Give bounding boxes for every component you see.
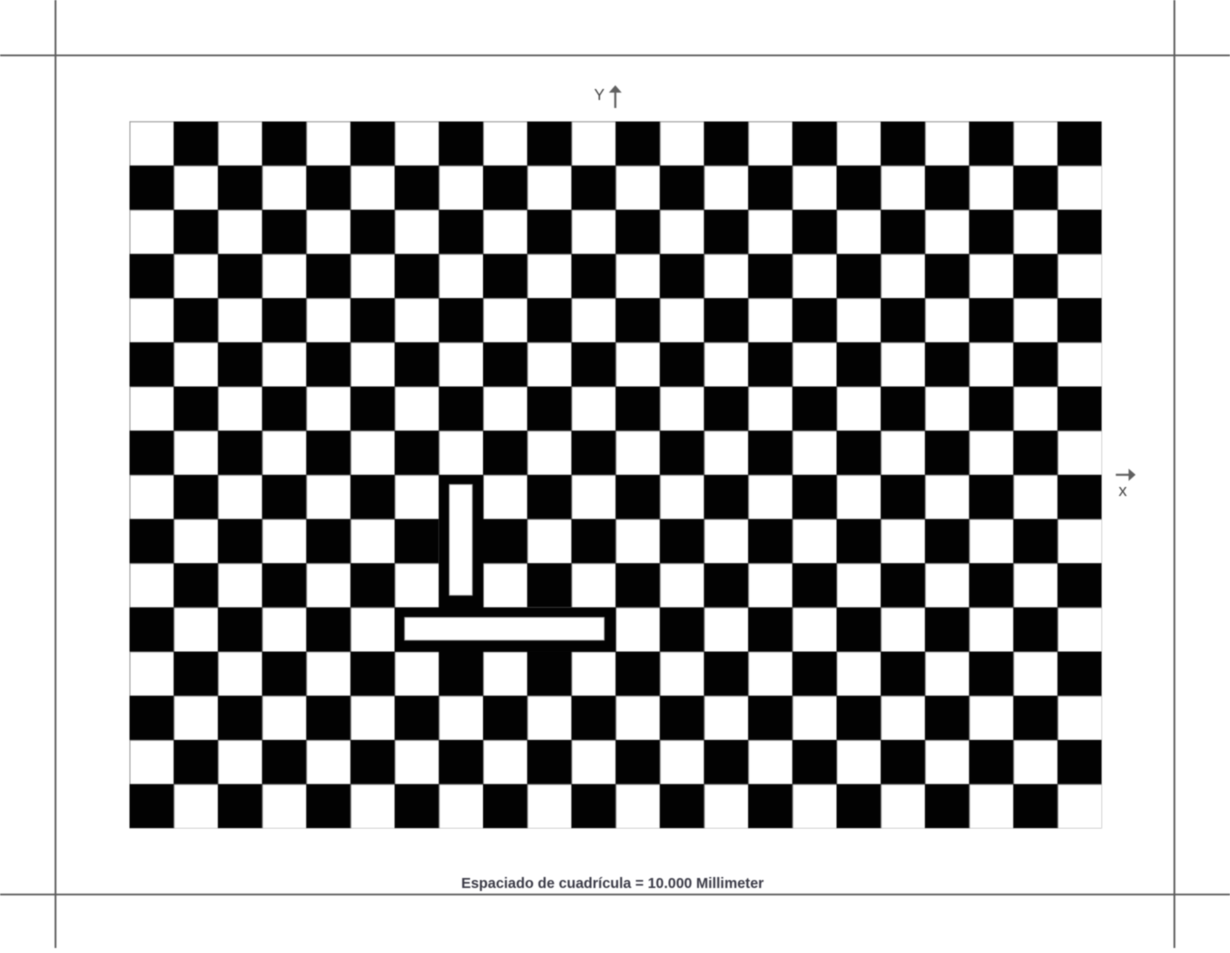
svg-text:x: x — [1119, 481, 1128, 500]
svg-text:Espaciado de cuadrícula = 10.0: Espaciado de cuadrícula = 10.000 Millime… — [461, 876, 764, 892]
svg-text:Y: Y — [594, 87, 605, 104]
